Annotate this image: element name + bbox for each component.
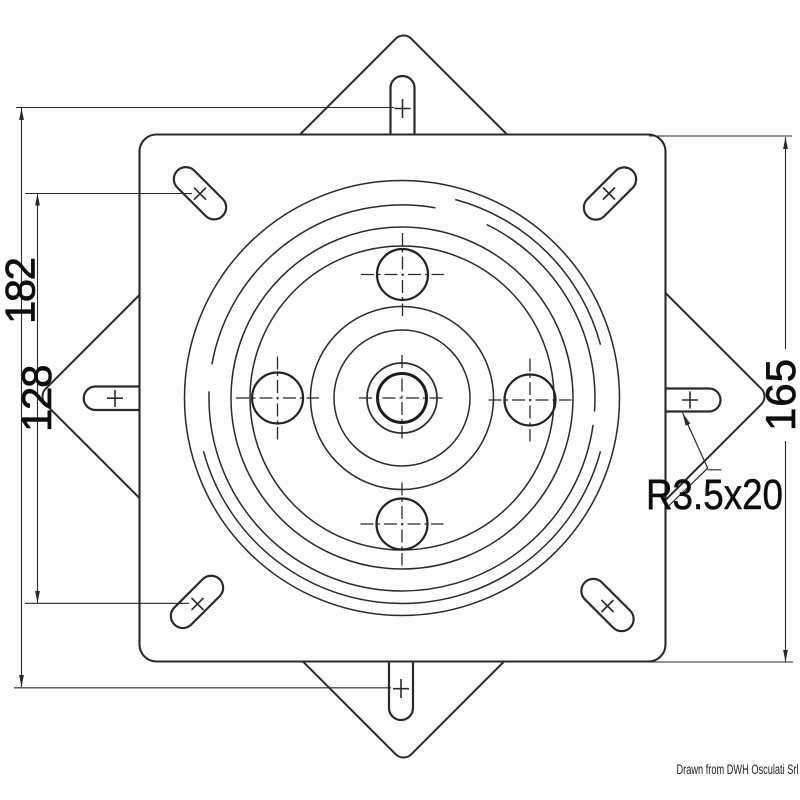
svg-text:Drawn from DWH Osculati Srl: Drawn from DWH Osculati Srl xyxy=(677,762,799,777)
svg-text:165: 165 xyxy=(757,359,800,431)
svg-text:128: 128 xyxy=(13,365,60,433)
svg-text:R3.5x20: R3.5x20 xyxy=(646,471,783,519)
